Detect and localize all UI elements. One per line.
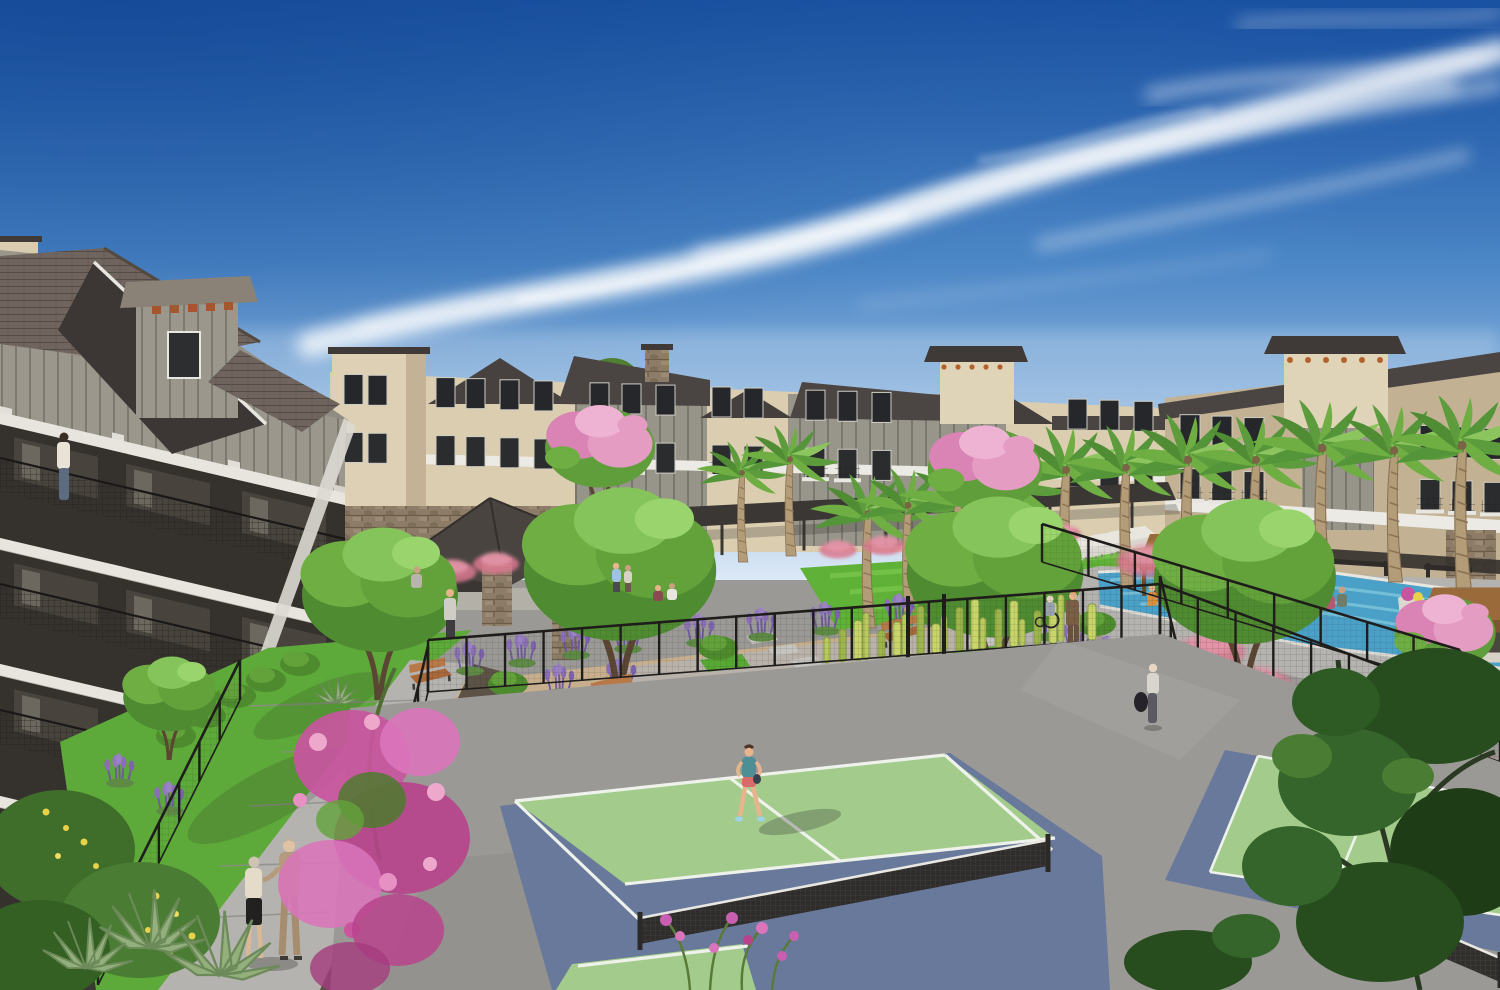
window — [500, 438, 519, 468]
window — [806, 390, 825, 420]
window — [466, 437, 485, 467]
window — [436, 378, 455, 408]
balcony-railing — [835, 465, 860, 478]
window — [368, 433, 387, 463]
apartment-courtyard-rendering — [0, 0, 1500, 990]
balcony-railing — [1417, 497, 1443, 509]
window — [1134, 401, 1153, 431]
window — [872, 392, 891, 422]
window — [368, 375, 387, 405]
duffel-bag — [1134, 692, 1148, 712]
window — [344, 374, 363, 404]
window — [500, 380, 519, 410]
rendering-canvas — [0, 0, 1500, 990]
window — [1068, 399, 1087, 429]
window — [622, 384, 641, 414]
window — [838, 391, 857, 421]
window — [1100, 400, 1119, 430]
window — [656, 443, 675, 473]
pickleball-paddle — [753, 774, 761, 784]
balcony-slab — [834, 478, 861, 482]
window — [436, 436, 455, 466]
balcony-slab — [1416, 509, 1444, 513]
stone-chimney — [645, 348, 669, 382]
window — [712, 387, 731, 417]
window — [466, 379, 485, 409]
balcony-slab — [1480, 512, 1500, 516]
balcony-railing — [1209, 488, 1235, 500]
balcony-railing — [1481, 500, 1500, 512]
window — [744, 388, 763, 418]
window — [656, 385, 675, 415]
window — [872, 450, 891, 480]
window — [534, 381, 553, 411]
